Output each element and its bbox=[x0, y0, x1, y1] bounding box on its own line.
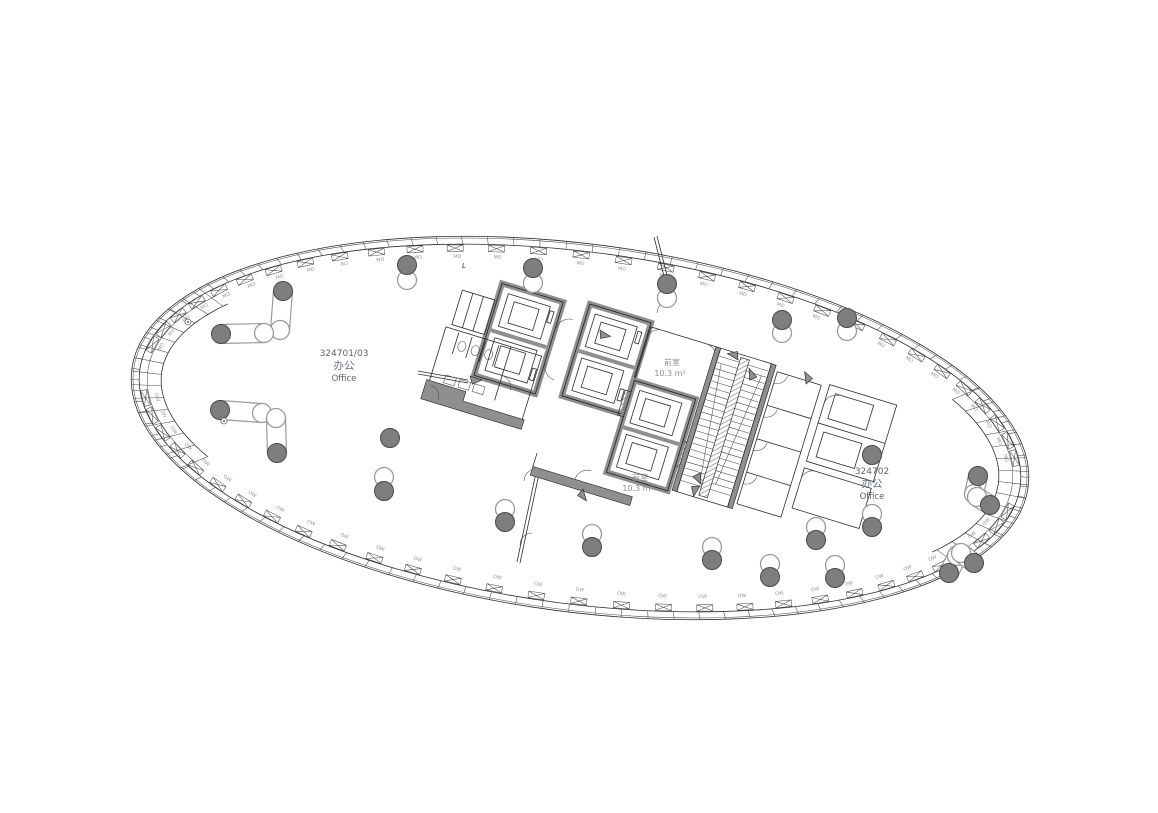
floor-plan-page: MOMOMOMOMOMOMOMOROMOMOMOMOMOMOMOMOMOMOMO… bbox=[0, 0, 1158, 813]
stair-tread bbox=[716, 471, 736, 477]
mullion-tick bbox=[513, 237, 514, 245]
mullion-label: OW bbox=[698, 594, 707, 600]
vestibule-area-upper: 10.3 m² bbox=[654, 369, 685, 378]
stair-tread bbox=[723, 446, 743, 452]
door-arc bbox=[801, 468, 816, 483]
mullion-label: OW bbox=[575, 587, 584, 594]
mullion-tick bbox=[930, 355, 937, 359]
room-name-cn-left: 办公 bbox=[334, 359, 355, 372]
panel-glyph bbox=[613, 601, 629, 609]
stair-tread bbox=[714, 375, 734, 381]
filled-column bbox=[524, 259, 543, 278]
panel-glyph bbox=[141, 389, 151, 406]
mullion-label: OW bbox=[844, 580, 854, 588]
mullion-label: MO bbox=[812, 313, 822, 322]
stair-tread bbox=[716, 369, 736, 375]
mullion-label: OW bbox=[492, 574, 502, 582]
stair-tread bbox=[737, 402, 757, 408]
survey-dot-center bbox=[187, 321, 189, 323]
mullion-tick bbox=[896, 334, 902, 339]
toilet-fixture bbox=[457, 340, 468, 352]
mullion-label: OW bbox=[981, 517, 991, 528]
panel-glyph bbox=[447, 245, 463, 252]
door-arc bbox=[824, 392, 839, 407]
room-name-en-right: Office bbox=[860, 492, 885, 502]
room-number-324702: 324702 bbox=[855, 467, 889, 477]
stair-tread bbox=[718, 464, 738, 470]
mullion-tick bbox=[914, 344, 920, 349]
mullion-label: OW bbox=[658, 593, 667, 599]
mullion-tick bbox=[223, 277, 229, 282]
sink-fixture bbox=[458, 379, 471, 390]
panel-glyph bbox=[699, 271, 716, 281]
mullion-label: RO bbox=[340, 261, 348, 268]
mullion-tick bbox=[618, 248, 619, 256]
mullion-tick bbox=[932, 574, 938, 579]
curtain-panel-symbol bbox=[297, 258, 314, 268]
mullion-tick bbox=[644, 252, 646, 260]
mullion-label: OW bbox=[811, 586, 821, 593]
stair-tread bbox=[687, 462, 707, 468]
mullion-label: OW bbox=[875, 573, 885, 581]
panel-glyph bbox=[368, 248, 385, 256]
room-name-cn-right: 办公 bbox=[862, 477, 883, 490]
room-name-en-left: Office bbox=[332, 374, 357, 384]
mullion-tick bbox=[259, 517, 265, 522]
panel-glyph bbox=[570, 597, 587, 605]
mullion-label: OW bbox=[200, 458, 211, 468]
mullion-tick bbox=[724, 611, 726, 619]
mullion-tick bbox=[278, 527, 284, 532]
mullion-tick bbox=[411, 238, 413, 246]
mullion-tick bbox=[131, 379, 139, 380]
mullion-label: MO bbox=[699, 281, 708, 289]
panel-glyph bbox=[775, 600, 792, 608]
mullion-label: OW bbox=[153, 393, 161, 403]
mullion-tick bbox=[673, 612, 674, 620]
mullion-label: OW bbox=[375, 544, 385, 552]
plan-labels: 324701/03 办公 Office 324702 办公 Office 前室 … bbox=[320, 262, 890, 502]
mullion-tick bbox=[699, 612, 701, 620]
filled-column bbox=[826, 569, 845, 588]
stair-tread bbox=[735, 408, 755, 414]
mullion-label: OW bbox=[928, 554, 939, 563]
mullion-label: OW bbox=[775, 590, 784, 597]
mullion-label: MO bbox=[376, 257, 385, 264]
mullion-label: MO bbox=[494, 254, 502, 260]
panel-glyph bbox=[444, 575, 461, 585]
tip-louver-line bbox=[132, 371, 162, 375]
filled-column bbox=[773, 311, 792, 330]
stair-tread bbox=[740, 390, 760, 396]
mullion-label: OW bbox=[158, 409, 167, 419]
mullion-label: OW bbox=[534, 581, 544, 588]
filled-column bbox=[969, 467, 988, 486]
mullion-tick bbox=[959, 376, 966, 380]
mullion-label: OW bbox=[452, 565, 462, 573]
stair-tread bbox=[712, 381, 732, 387]
mullion-label: MO bbox=[576, 260, 585, 267]
mullion-label: MO bbox=[904, 355, 914, 364]
floor-plan-canvas: MOMOMOMOMOMOMOMOROMOMOMOMOMOMOMOMOMOMOMO… bbox=[0, 0, 1158, 813]
door-arc bbox=[753, 440, 767, 454]
panel-glyph bbox=[297, 258, 314, 268]
stair-tread bbox=[689, 456, 709, 462]
mullion-label: MO bbox=[738, 290, 747, 298]
survey-dot-center bbox=[223, 420, 225, 422]
mullion-label: OW bbox=[903, 564, 913, 573]
building-envelope bbox=[108, 187, 1052, 670]
filled-column bbox=[583, 538, 602, 557]
mullion-tick bbox=[994, 534, 1001, 537]
curtain-panel-symbol bbox=[1009, 449, 1019, 466]
filled-column bbox=[274, 282, 293, 301]
door-arc bbox=[774, 373, 788, 387]
mullion-tick bbox=[207, 284, 213, 289]
mullion-label: MO bbox=[776, 301, 786, 309]
filled-column bbox=[496, 513, 515, 532]
mullion-label: MO bbox=[222, 291, 232, 300]
mullion-tick bbox=[132, 368, 140, 369]
panel-glyph bbox=[1009, 449, 1019, 466]
panel-glyph bbox=[655, 604, 671, 611]
mullion-tick bbox=[1021, 477, 1029, 478]
stair-tread bbox=[721, 452, 741, 458]
curtain-panel-symbol bbox=[697, 605, 713, 612]
mullion-tick bbox=[241, 508, 247, 513]
mullion-label: MO bbox=[306, 266, 315, 274]
panel-glyph bbox=[530, 247, 546, 255]
stair-tread bbox=[712, 483, 732, 489]
mullion-tick bbox=[193, 292, 200, 297]
filled-column bbox=[268, 444, 287, 463]
mullion-tick bbox=[592, 244, 593, 252]
mullion-label: OW bbox=[339, 532, 349, 541]
tip-louver-line bbox=[999, 470, 1029, 471]
mullion-tick bbox=[436, 237, 438, 245]
panel-glyph bbox=[737, 603, 753, 610]
mullion-tick bbox=[489, 592, 491, 600]
outer-facade-line-2 bbox=[110, 189, 1050, 668]
mullion-tick bbox=[772, 609, 775, 616]
curtain-panel-symbol bbox=[699, 271, 716, 281]
mullion-tick bbox=[945, 365, 952, 369]
curtain-panel-symbol bbox=[368, 248, 385, 256]
filled-column bbox=[212, 325, 231, 344]
filled-column bbox=[940, 564, 959, 583]
room-number-324701-03: 324701/03 bbox=[320, 349, 369, 359]
filled-column bbox=[807, 531, 826, 550]
mullion-label: OW bbox=[275, 505, 286, 514]
mullion-label: MO bbox=[876, 341, 886, 350]
stair-tread bbox=[725, 439, 745, 445]
curtain-panel-symbol bbox=[447, 245, 463, 252]
mullion-tick bbox=[542, 601, 543, 609]
door-arc bbox=[764, 406, 778, 420]
stair-tread bbox=[708, 393, 728, 399]
mullion-label: MO bbox=[453, 254, 461, 260]
vestibule-area-lower: 10.3 m² bbox=[622, 484, 653, 493]
mullion-tick bbox=[209, 487, 216, 491]
mullion-label: OW bbox=[413, 556, 423, 564]
stair-tread bbox=[706, 400, 726, 406]
stair-tread bbox=[710, 387, 730, 393]
mullion-tick bbox=[1020, 486, 1028, 487]
mullion-label: OW bbox=[247, 490, 258, 500]
mullion-label: OW bbox=[183, 441, 193, 452]
mullion-label: OW bbox=[617, 591, 626, 598]
filled-column bbox=[703, 551, 722, 570]
filled-column bbox=[863, 518, 882, 537]
stair-tread bbox=[697, 431, 717, 437]
open-column bbox=[267, 409, 286, 428]
filled-column bbox=[398, 256, 417, 275]
vestibule-label-lower: 前室 bbox=[632, 472, 648, 482]
tip-louver-line bbox=[131, 384, 161, 385]
curtain-panel-symbol bbox=[570, 597, 587, 605]
mullion-label: MO bbox=[247, 281, 257, 290]
mullion-tick bbox=[159, 318, 166, 321]
stray-reference-mark: L bbox=[462, 262, 466, 270]
outer-facade-line bbox=[108, 187, 1052, 670]
mullion-tick bbox=[648, 611, 649, 619]
tip-louver-line bbox=[999, 481, 1029, 485]
stair-tread bbox=[710, 489, 730, 495]
stair-tread bbox=[739, 396, 759, 402]
filled-column bbox=[838, 309, 857, 328]
panel-glyph bbox=[488, 245, 504, 252]
curtain-panel-symbol bbox=[444, 575, 461, 585]
mullion-tick bbox=[169, 309, 176, 313]
mullion-label: MO bbox=[1002, 453, 1010, 462]
panel-glyph bbox=[697, 605, 713, 612]
stair-tread bbox=[698, 425, 718, 431]
curtain-panel-symbol bbox=[775, 600, 792, 608]
curtain-panel-symbol bbox=[141, 389, 151, 406]
curtain-panel-symbol bbox=[737, 603, 753, 610]
stair-tread bbox=[729, 427, 749, 433]
curtain-panel-symbol bbox=[613, 601, 629, 609]
door-arc bbox=[743, 473, 757, 487]
curtain-panel-symbol bbox=[655, 604, 671, 611]
core-bottom-wall bbox=[530, 466, 632, 505]
mullion-label: OW bbox=[738, 593, 747, 599]
stair-tread bbox=[695, 437, 715, 443]
filled-column bbox=[211, 401, 230, 420]
filled-column bbox=[965, 554, 984, 573]
curtain-panel-symbol bbox=[573, 251, 590, 259]
mullion-tick bbox=[515, 597, 517, 605]
curtain-panel-symbol bbox=[407, 246, 423, 253]
tip-louver-line bbox=[996, 493, 1025, 499]
curtain-panel-symbol bbox=[488, 245, 504, 252]
mullion-label: OW bbox=[306, 519, 316, 528]
elevator-bank-b bbox=[538, 297, 651, 415]
panel-glyph bbox=[573, 251, 590, 259]
mullion-tick bbox=[194, 477, 201, 481]
mullion-tick bbox=[461, 236, 463, 244]
tip-louver-line bbox=[134, 358, 163, 364]
filled-column bbox=[761, 568, 780, 587]
stair-tread bbox=[691, 449, 711, 455]
mullion-tick bbox=[748, 610, 750, 618]
filled-column bbox=[375, 482, 394, 501]
stair-tread bbox=[719, 458, 739, 464]
mullion-label: OW bbox=[168, 425, 178, 436]
door-arc bbox=[520, 533, 532, 545]
filled-column bbox=[863, 446, 882, 465]
mullion-tick bbox=[487, 237, 488, 245]
curtain-panel-symbol bbox=[530, 247, 546, 255]
mullion-tick bbox=[224, 498, 231, 502]
filled-column bbox=[381, 429, 400, 448]
stair-tread bbox=[704, 406, 724, 412]
open-column bbox=[255, 324, 274, 343]
mullion-tick bbox=[569, 604, 570, 612]
filled-column bbox=[658, 275, 677, 294]
vestibule-label-upper: 前室 bbox=[664, 357, 680, 367]
filled-column bbox=[981, 496, 1000, 515]
stair-tread bbox=[693, 443, 713, 449]
sink-fixture bbox=[472, 384, 485, 395]
panel-glyph bbox=[407, 246, 423, 253]
mullion-tick bbox=[387, 240, 390, 247]
mullion-label: OW bbox=[222, 474, 233, 484]
mullion-label: MO bbox=[275, 273, 285, 281]
mullion-label: MO bbox=[618, 266, 627, 273]
mullion-tick bbox=[877, 324, 883, 329]
stair-tread bbox=[742, 384, 762, 390]
